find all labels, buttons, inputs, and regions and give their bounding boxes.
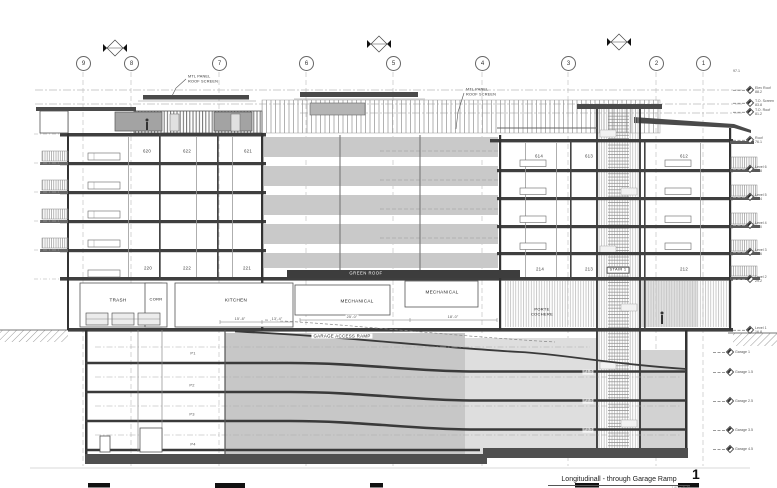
elevation-text: Roof 76.1	[755, 136, 763, 144]
level-line	[733, 330, 745, 331]
elevation-flag-icon	[726, 348, 734, 356]
elevation-flag-icon	[726, 445, 734, 453]
elevation-flag-icon	[746, 165, 754, 173]
elevation-marker: Elev Roof 88.2	[733, 86, 771, 94]
elevation-flag-icon	[726, 426, 734, 434]
elevation-text: Level 6 66.8	[755, 165, 767, 173]
detail-number: 1	[692, 466, 700, 482]
elevation-text: Garage 4.5	[735, 447, 753, 451]
elevation-marker: T.O. Screen 83.8	[733, 99, 774, 107]
elevation-text: 97.1	[733, 69, 740, 73]
elevation-flag-icon	[746, 99, 754, 107]
grid-bubble-5: 5	[386, 56, 401, 71]
elevation-text: Garage 2.5	[735, 399, 753, 403]
elevation-text: Level 1 16.8	[755, 326, 767, 334]
level-line	[733, 279, 745, 280]
elevation-flag-icon	[746, 275, 754, 283]
elevation-flag-icon	[746, 86, 754, 94]
level-line	[733, 252, 745, 253]
elevation-flag-icon	[746, 326, 754, 334]
section-cut-marker-icon	[103, 34, 631, 56]
grid-bubble-8: 8	[124, 56, 139, 71]
elevation-text: Garage 1	[735, 350, 750, 354]
green-roof-bar	[287, 270, 520, 278]
elevation-marker: Level 1 16.8	[733, 326, 767, 334]
grid-bubble-3: 3	[561, 56, 576, 71]
elevation-flag-icon	[746, 108, 754, 116]
elevation-marker: Level 6 66.8	[733, 165, 767, 173]
parking-decks	[264, 135, 498, 270]
elevation-flag-icon	[726, 368, 734, 376]
elevation-marker: Level 3 38.6	[733, 248, 767, 256]
elevation-text: Level 3 38.6	[755, 248, 767, 256]
garage-elevation-marker: Garage 3.5	[713, 427, 753, 433]
elevation-text: Elev Roof 88.2	[755, 86, 771, 94]
drawing-caption: Longitudinall - through Garage Ramp 1 1/…	[548, 468, 708, 488]
section-drawing	[0, 0, 777, 488]
level-line	[733, 225, 745, 226]
garage-elevation-marker: Garage 1.5	[713, 369, 753, 375]
level-line	[713, 352, 725, 353]
stair-tower	[597, 109, 640, 455]
level-line	[733, 103, 745, 104]
drawing-title: Longitudinall - through Garage Ramp	[548, 476, 690, 486]
garage-elevation-marker: Garage 1	[713, 349, 750, 355]
architectural-section-sheet: Longitudinall - through Garage Ramp 1 1/…	[0, 0, 777, 488]
grid-bubble-2: 2	[649, 56, 664, 71]
garage-elevation-marker: Garage 2.5	[713, 398, 753, 404]
elevation-text: Level 5 57.4	[755, 193, 767, 201]
level-line	[713, 449, 725, 450]
elevation-flag-icon	[746, 193, 754, 201]
elevation-flag-icon	[746, 248, 754, 256]
level-line	[713, 401, 725, 402]
elevation-marker: Roof 76.1	[733, 136, 763, 144]
elevation-marker: Level 5 57.4	[733, 193, 767, 201]
level-line	[733, 112, 745, 113]
grid-bubble-9: 9	[76, 56, 91, 71]
grid-bubble-6: 6	[299, 56, 314, 71]
elevation-marker: Level 2 29.2	[733, 275, 767, 283]
grid-bubble-4: 4	[475, 56, 490, 71]
elevation-text: Garage 3.5	[735, 428, 753, 432]
elevation-text: T.O. Roof 81.2	[755, 108, 770, 116]
elevation-flag-icon	[746, 221, 754, 229]
elevation-marker: T.O. Roof 81.2	[733, 108, 770, 116]
level-line	[713, 430, 725, 431]
elevation-text: Level 4 48.0	[755, 221, 767, 229]
level-line	[733, 169, 745, 170]
level-line	[733, 197, 745, 198]
grid-bubble-1: 1	[696, 56, 711, 71]
level-line	[733, 90, 745, 91]
elevation-marker: 97.1	[733, 69, 740, 73]
garage-elevation-marker: Garage 4.5	[713, 446, 753, 452]
level-line	[733, 140, 745, 141]
elevation-flag-icon	[726, 397, 734, 405]
elevation-text: Level 2 29.2	[755, 275, 767, 283]
elevation-text: T.O. Screen 83.8	[755, 99, 774, 107]
elevation-flag-icon	[746, 136, 754, 144]
grid-bubble-7: 7	[212, 56, 227, 71]
level-line	[713, 372, 725, 373]
elevation-marker: Level 4 48.0	[733, 221, 767, 229]
elevation-text: Garage 1.5	[735, 370, 753, 374]
